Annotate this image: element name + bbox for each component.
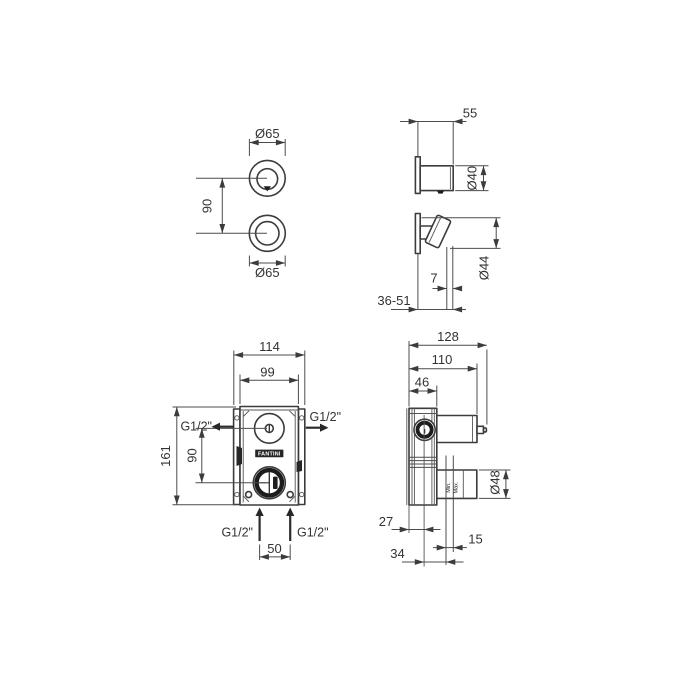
label-min: Min. — [446, 482, 452, 493]
thermostat-cartridge-side — [437, 416, 477, 443]
dim-label-cartridge-depth: 110 — [432, 352, 453, 367]
port-label-outlet-left: G1/2" — [180, 420, 212, 434]
port-label-inlet-left: G1/2" — [221, 526, 253, 540]
side-clip-right — [297, 460, 303, 472]
dim-label-lever-diameter: Ø44 — [477, 256, 492, 281]
dim-label-axis-depth: 27 — [379, 514, 393, 529]
side-clip-left — [237, 446, 243, 466]
dim-label-rosette-gap: 7 — [430, 271, 437, 286]
port-label-inlet-right: G1/2" — [297, 526, 329, 540]
dim-label-overall-width: 114 — [259, 339, 280, 354]
dim-label-centre-to-min: 34 — [390, 546, 404, 561]
dim-label-body-depth: 46 — [415, 375, 429, 390]
dim-label-bottom-knob-diameter: Ø65 — [255, 265, 280, 280]
dim-label-knob-spacing: 90 — [200, 199, 215, 213]
technical-drawing-canvas: Ø65 90 Ø65 55 — [0, 0, 700, 700]
dim-label-knob-diameter-side: Ø40 — [465, 166, 480, 191]
dim-label-cartridge-diameter: Ø48 — [488, 470, 503, 495]
dim-label-overall-depth: 128 — [437, 329, 459, 344]
dim-label-overall-height: 161 — [158, 445, 173, 467]
flange-strip-right — [298, 409, 304, 505]
page-background — [0, 0, 700, 700]
dim-label-projection: 55 — [463, 106, 477, 121]
screw-hole-right — [287, 492, 293, 498]
dim-label-body-width: 99 — [260, 364, 274, 379]
dim-label-top-knob-diameter: Ø65 — [255, 126, 280, 141]
dim-label-wall-depth-range: 36-51 — [377, 293, 410, 308]
dim-label-port-vertical-spacing: 90 — [185, 448, 200, 462]
brand-label: FANTINI — [258, 452, 281, 458]
port-label-outlet-right: G1/2" — [310, 410, 342, 424]
screw-hole-left — [246, 492, 252, 498]
label-max: Max. — [453, 481, 459, 493]
volume-handle-grip — [273, 477, 278, 489]
cartridge-spindle-tip — [484, 428, 487, 432]
dim-label-inlet-spacing: 50 — [267, 541, 281, 556]
dim-label-min-max-range: 15 — [468, 532, 482, 547]
knob-cylinder-side — [420, 166, 453, 191]
cartridge-spindle — [477, 426, 484, 433]
